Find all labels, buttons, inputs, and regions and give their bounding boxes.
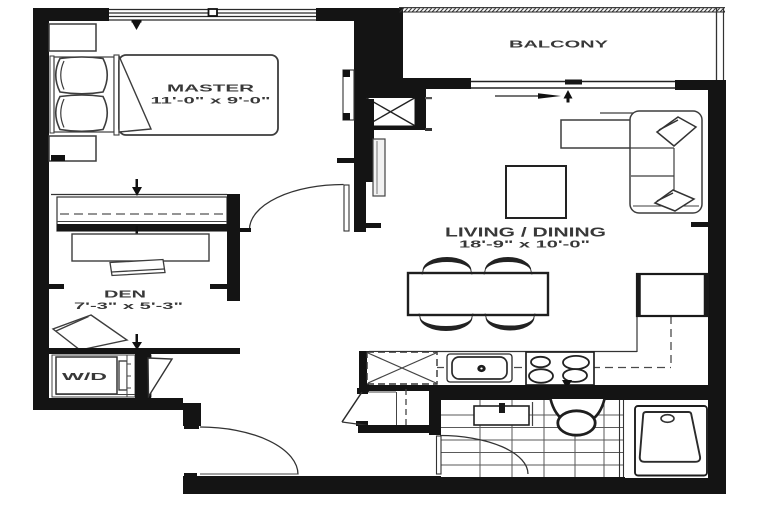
svg-text:11'-0" x 9'-0": 11'-0" x 9'-0" — [151, 96, 271, 107]
svg-text:W/D: W/D — [62, 371, 108, 383]
svg-text:MASTER: MASTER — [167, 83, 255, 95]
svg-text:LIVING / DINING: LIVING / DINING — [445, 226, 606, 240]
svg-text:7'-3" x 5'-3": 7'-3" x 5'-3" — [74, 301, 183, 312]
svg-text:BALCONY: BALCONY — [509, 40, 609, 51]
svg-text:DEN: DEN — [104, 289, 146, 301]
svg-text:18'-9" x 10'-0": 18'-9" x 10'-0" — [459, 239, 590, 251]
